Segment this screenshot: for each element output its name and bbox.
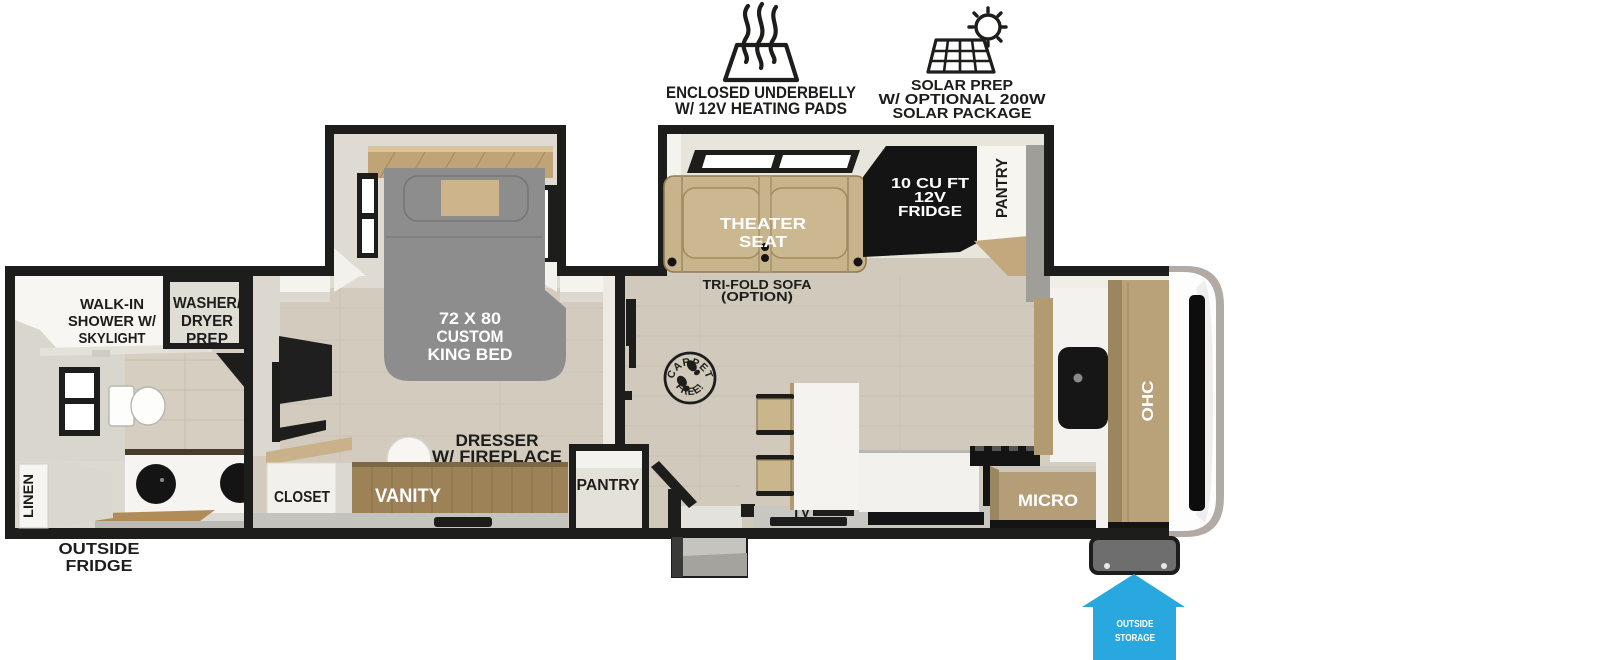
svg-text:FRIDGE: FRIDGE — [898, 204, 962, 220]
svg-text:LINEN: LINEN — [20, 474, 36, 518]
svg-text:THEATER: THEATER — [720, 216, 806, 233]
svg-text:CUSTOM: CUSTOM — [437, 327, 504, 346]
svg-text:CLOSET: CLOSET — [274, 489, 330, 506]
svg-text:PANTRY: PANTRY — [577, 477, 640, 494]
svg-text:OUTSIDE: OUTSIDE — [1117, 618, 1154, 630]
svg-text:MICRO: MICRO — [1018, 492, 1078, 510]
svg-text:SEAT: SEAT — [739, 234, 788, 251]
svg-text:W/ 12V HEATING PADS: W/ 12V HEATING PADS — [675, 100, 847, 118]
svg-text:FRIDGE: FRIDGE — [66, 558, 133, 575]
svg-text:STORAGE: STORAGE — [1115, 632, 1155, 644]
svg-text:WALK-IN: WALK-IN — [80, 296, 144, 313]
svg-text:WASHER/: WASHER/ — [173, 295, 242, 312]
svg-text:OHC: OHC — [1140, 381, 1157, 422]
svg-text:VANITY: VANITY — [375, 486, 441, 507]
svg-text:PREP: PREP — [186, 331, 228, 348]
svg-text:72 X 80: 72 X 80 — [439, 309, 501, 328]
svg-text:PANTRY: PANTRY — [994, 158, 1011, 218]
svg-text:SKYLIGHT: SKYLIGHT — [79, 330, 146, 347]
svg-text:SOLAR PACKAGE: SOLAR PACKAGE — [893, 105, 1032, 122]
svg-text:KING BED: KING BED — [428, 345, 513, 364]
svg-text:OUTSIDE: OUTSIDE — [59, 541, 140, 558]
svg-text:DRYER: DRYER — [181, 313, 233, 330]
svg-text:SHOWER W/: SHOWER W/ — [68, 313, 157, 330]
svg-text:(OPTION): (OPTION) — [721, 289, 793, 304]
